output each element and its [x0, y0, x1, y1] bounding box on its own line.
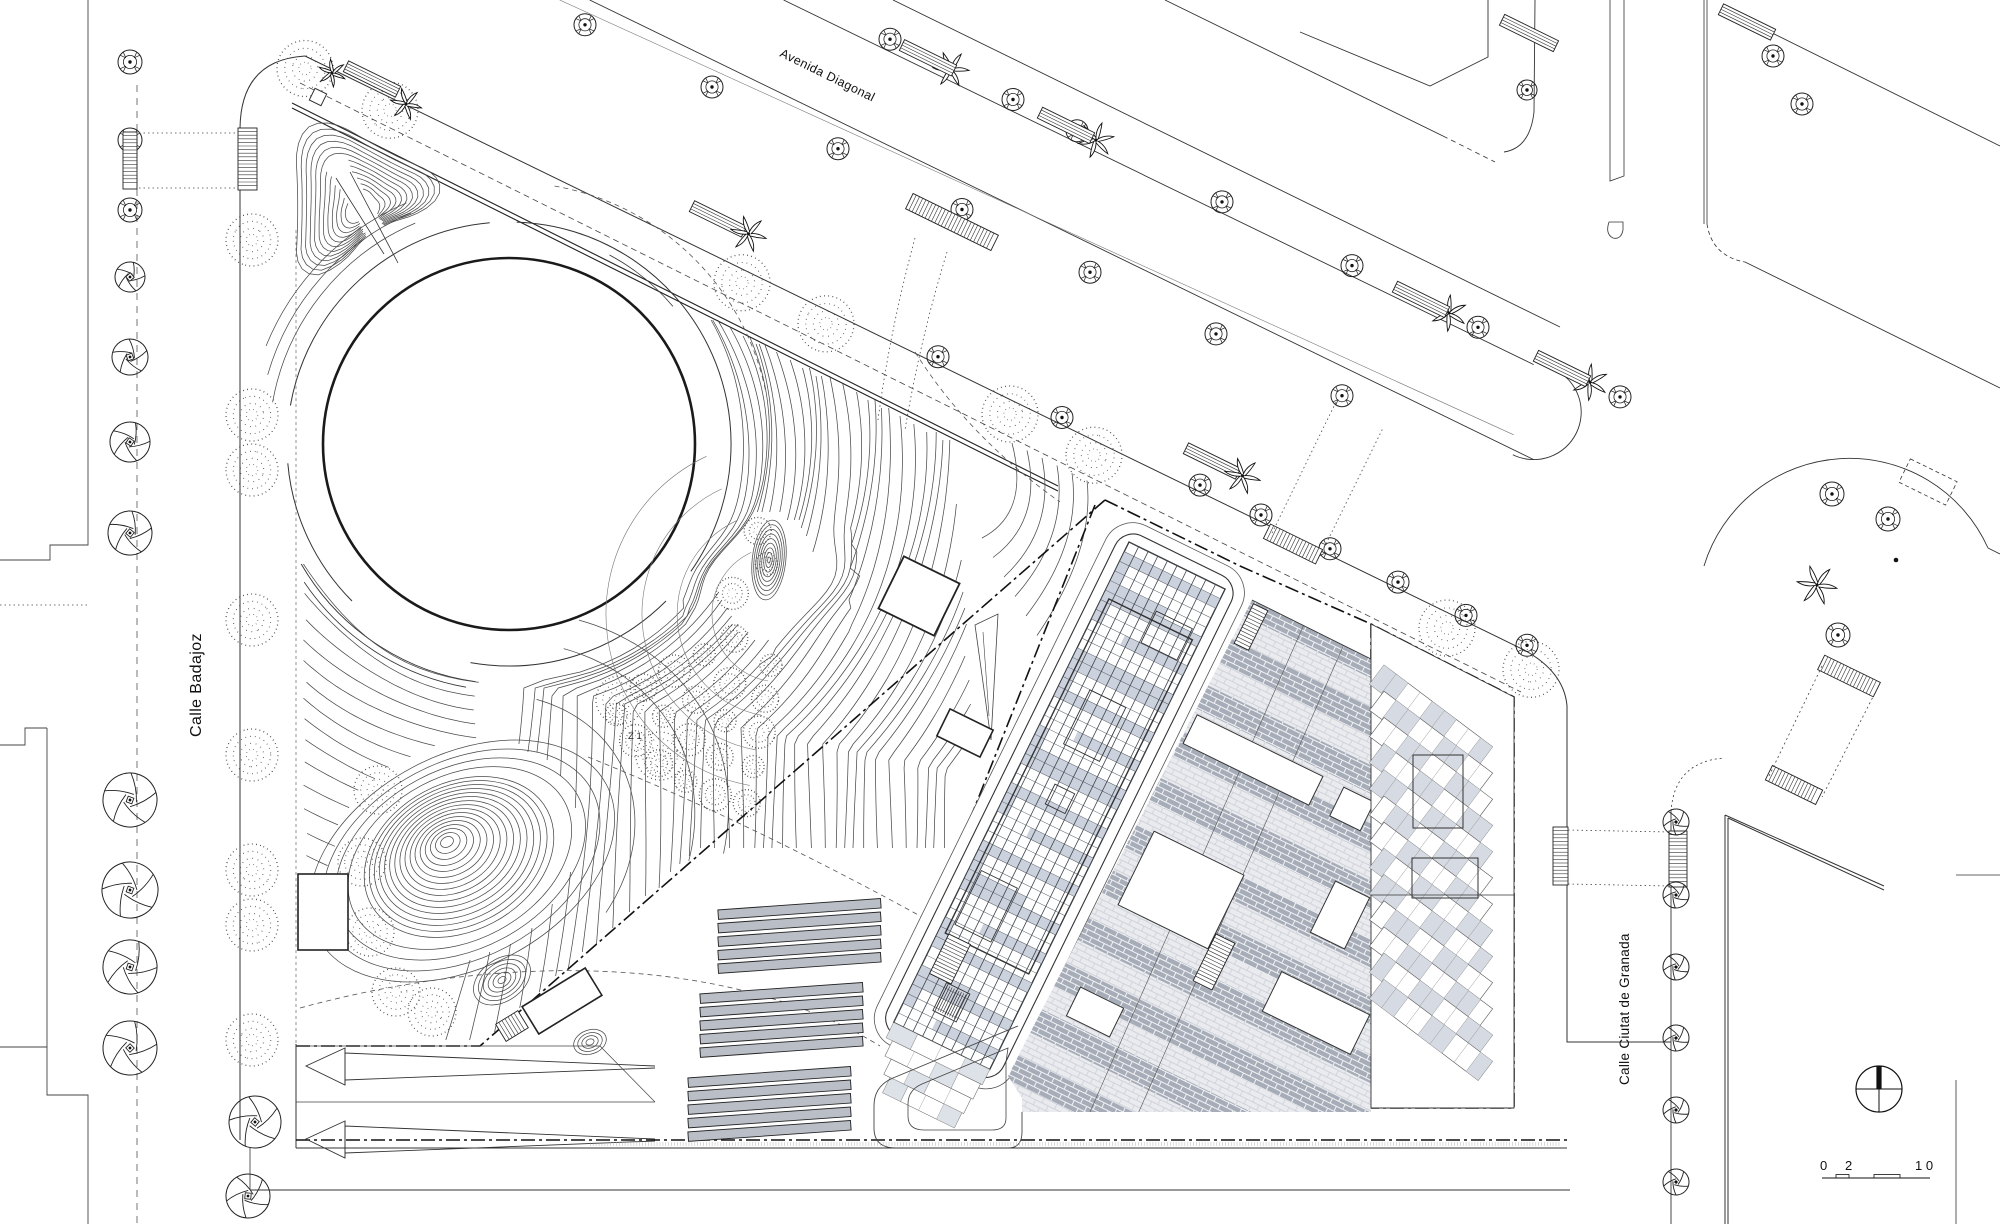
svg-text:1 0: 1 0: [1915, 1158, 1933, 1173]
svg-text:Calle Badajoz: Calle Badajoz: [188, 633, 205, 737]
svg-text:Z 1: Z 1: [628, 731, 642, 742]
svg-text:Calle Ciutat de Granada: Calle Ciutat de Granada: [1617, 933, 1632, 1085]
svg-text:2: 2: [1845, 1158, 1852, 1173]
svg-text:0: 0: [1820, 1158, 1827, 1173]
